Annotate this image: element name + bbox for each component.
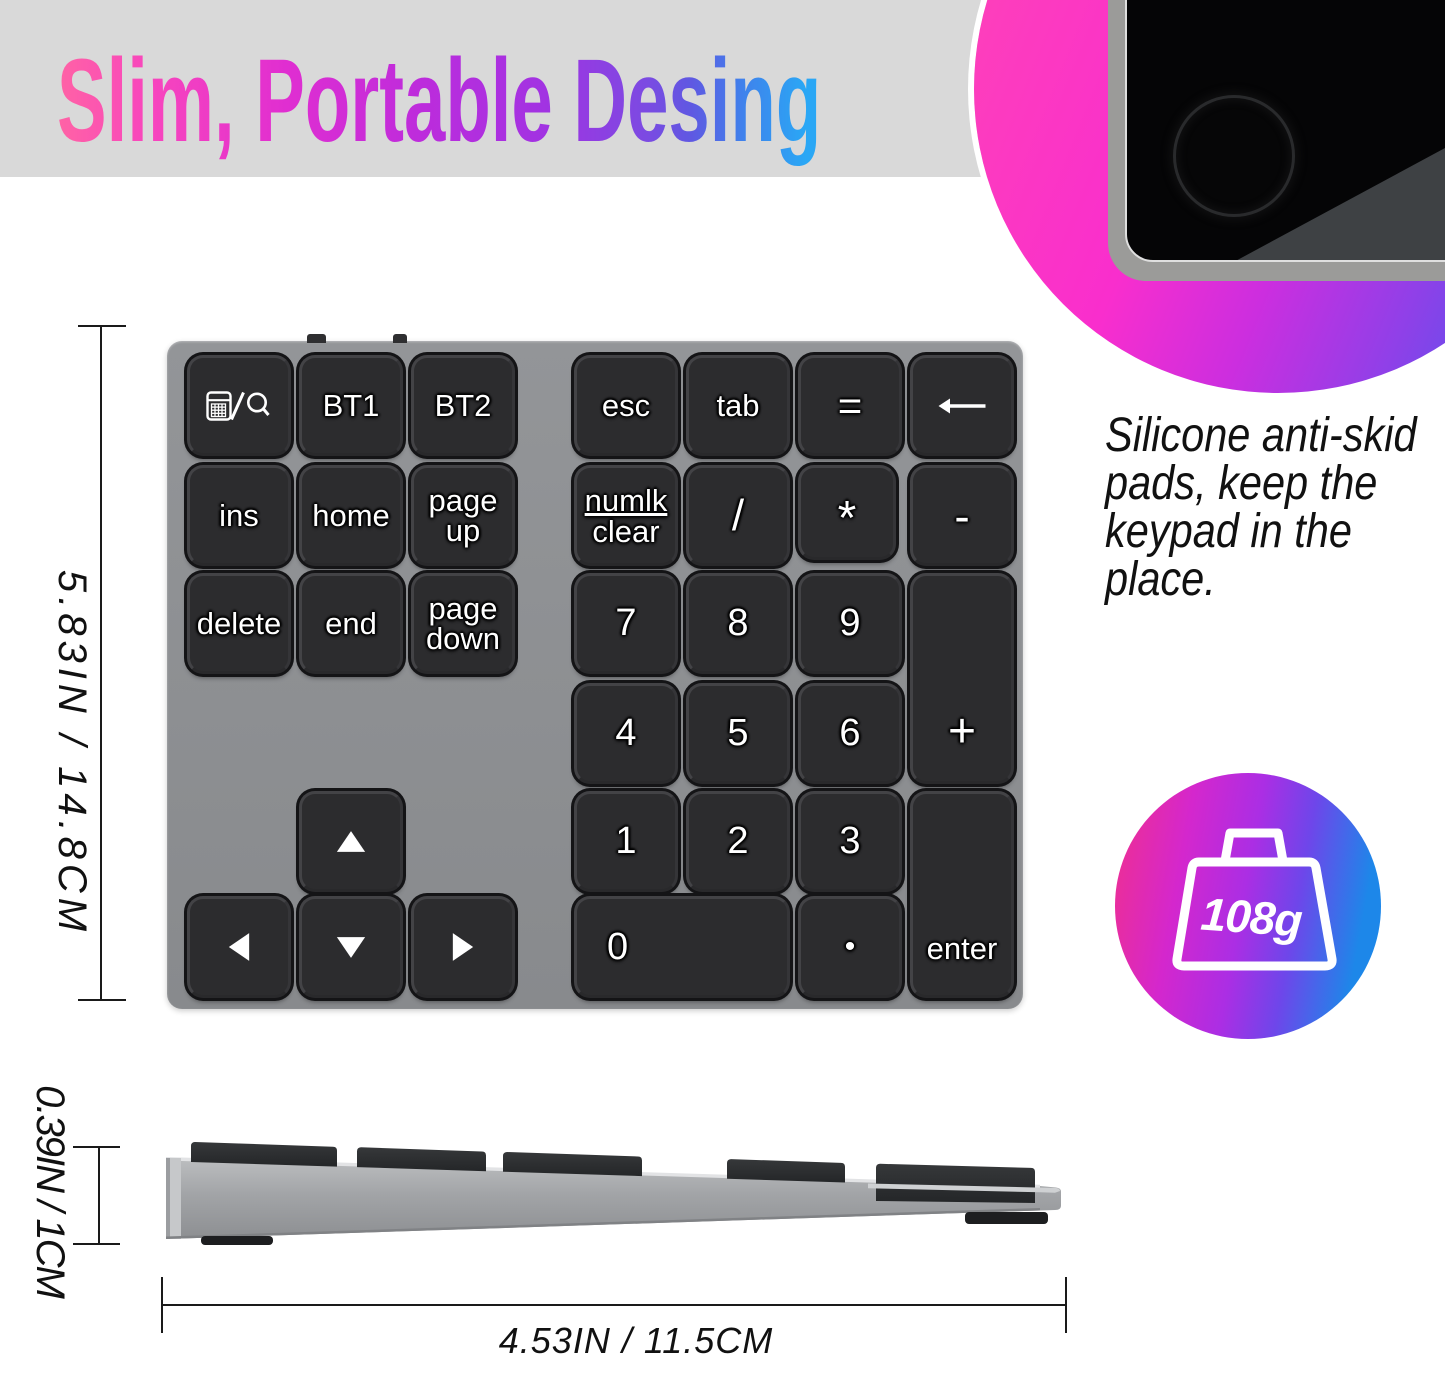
svg-text:108g: 108g (1199, 888, 1304, 947)
